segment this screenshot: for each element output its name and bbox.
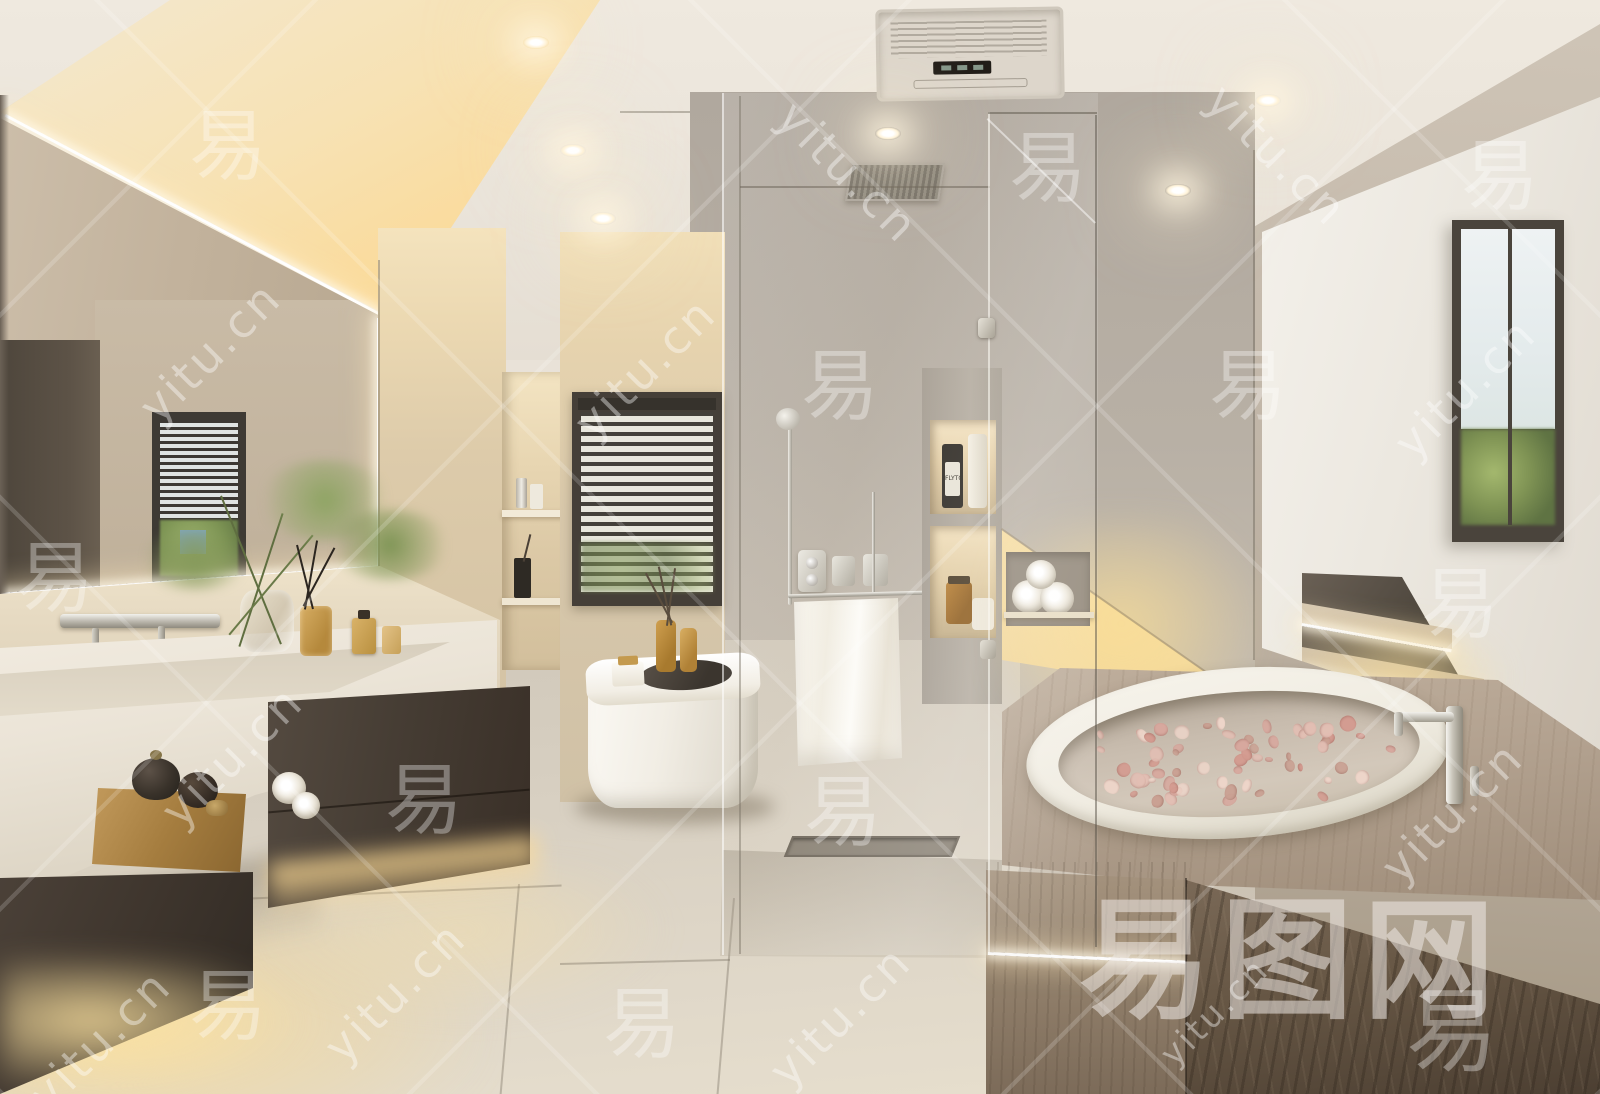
niche-shelf-1 (502, 510, 564, 517)
glass-door-edge-right (1095, 115, 1097, 947)
blinds-header (578, 398, 716, 410)
perfume-bottle-1 (352, 618, 376, 654)
back-wall-corner (1253, 150, 1255, 660)
linear-drain (784, 836, 960, 857)
perfume-bottle-2 (382, 626, 401, 654)
glass-door-top (988, 112, 1097, 114)
teapot-1 (132, 758, 180, 800)
tea-cup (206, 800, 228, 816)
ac-vent-unit (875, 6, 1065, 101)
ac-vent-lower-slot (913, 78, 1027, 89)
wardrobe-panel-seam (58, 350, 59, 600)
ceiling-spotlight-3 (590, 212, 616, 225)
tub-faucet-handle (1470, 766, 1479, 796)
niche-bottle-chrome (516, 478, 527, 508)
shower-niche-1: FLYTO (930, 420, 996, 514)
toilet-soap-box (611, 661, 644, 687)
perfume-bottle-1-cap (358, 610, 370, 619)
left-edge-shadow (0, 95, 9, 600)
ac-vent-slats (890, 20, 1047, 59)
tub-step-platform (986, 862, 1186, 1094)
ceiling-spotlight-1 (523, 36, 549, 49)
shower-bottle-dark: FLYTO (942, 444, 963, 508)
ceiling-spotlight-4 (875, 127, 901, 140)
reed-diffuser (300, 606, 332, 656)
toilet-reed-sticks (640, 566, 690, 626)
hanging-towel (794, 598, 902, 766)
rolled-towel-small-2 (292, 792, 320, 819)
ceiling-spotlight-5 (1255, 94, 1281, 107)
diffuser-sticks (280, 540, 340, 610)
shower-control-plate-3 (863, 554, 888, 586)
glass-support-bar (740, 186, 990, 188)
bathroom-photo: FLYTO (0, 0, 1600, 1094)
niche-bottle-black (514, 558, 531, 598)
rain-shower-head (845, 163, 945, 201)
alcove-window-mullion (1508, 229, 1512, 525)
alcove-window (1452, 220, 1564, 542)
shower-bottle-label: FLYTO (945, 462, 960, 496)
shower-wand (872, 492, 875, 592)
glass-door-edge-left (988, 112, 990, 954)
niche-shelf-2 (502, 598, 564, 605)
towel-niche-shelf (1004, 612, 1094, 618)
toilet-soap-gold (618, 655, 638, 665)
shower-niche-2 (930, 526, 996, 638)
white-jar (972, 598, 994, 630)
shower-control-plate-2 (832, 556, 855, 586)
hand-shower-rail (788, 420, 792, 605)
glass-edge-left-b (739, 96, 741, 954)
tub-corner-seam (1185, 878, 1187, 1094)
niche-bottle-white (530, 484, 543, 509)
ceiling-spotlight-6 (1165, 184, 1191, 197)
teapot-1-knob (150, 750, 162, 760)
toilet-diffuser-bottle-2 (680, 628, 697, 672)
amber-jar-lid (948, 576, 970, 584)
shelf-niche-column (502, 372, 564, 670)
glass-edge-left-a (722, 93, 724, 955)
shower-control-plate-1 (798, 550, 826, 592)
glass-hinge-1 (978, 318, 995, 338)
tub-faucet-spout-drop (1394, 712, 1403, 736)
ac-vent-display (933, 61, 991, 75)
toilet-diffuser-bottle-1 (656, 620, 676, 672)
amber-jar (946, 582, 972, 624)
shower-bottle-white (968, 434, 987, 508)
mirror-reflected-wardrobe (0, 340, 100, 610)
tub-faucet-spout (1394, 712, 1454, 722)
hand-shower-head (776, 408, 800, 430)
ceiling-spotlight-2 (560, 144, 586, 157)
glass-hinge-2 (980, 640, 996, 659)
rolled-towel-3 (1026, 560, 1056, 589)
